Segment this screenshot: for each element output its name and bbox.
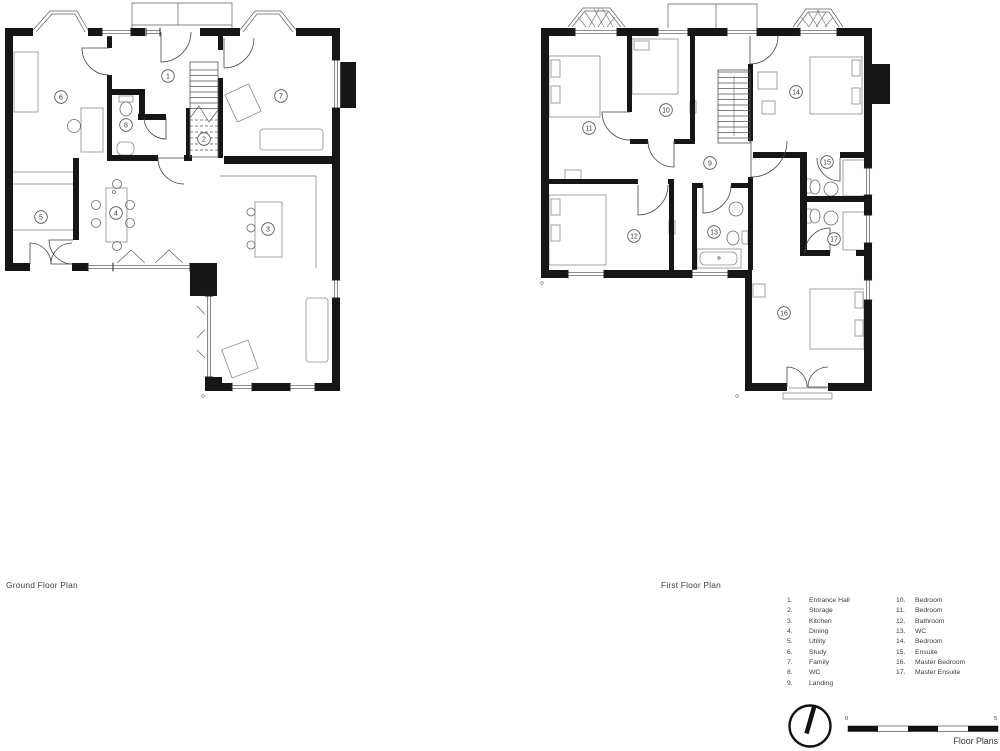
exterior-wall xyxy=(5,36,13,263)
furniture xyxy=(117,142,134,155)
room-number-label: 8 xyxy=(120,119,133,132)
interior-wall xyxy=(218,78,223,158)
room-number-text: 1 xyxy=(166,73,170,80)
exterior-wall xyxy=(757,28,800,36)
interior-wall xyxy=(138,114,166,120)
door-swing xyxy=(648,141,674,167)
room-number-label: 14 xyxy=(790,86,803,99)
furniture xyxy=(222,340,259,378)
furniture xyxy=(634,41,649,50)
exterior-wall xyxy=(864,36,872,168)
room-number-label: 1 xyxy=(162,70,175,83)
interior-wall xyxy=(186,108,190,158)
interior-wall xyxy=(840,152,864,158)
interior-wall xyxy=(218,36,223,50)
room-number-label: 6 xyxy=(55,91,68,104)
exterior-wall xyxy=(228,28,240,36)
exterior-wall xyxy=(5,28,33,36)
interior-wall xyxy=(139,89,145,118)
scale-bar-segment xyxy=(968,726,998,732)
legend-item-number: 13. xyxy=(896,627,915,637)
legend-item-label: Bedroom xyxy=(915,606,943,616)
interior-wall xyxy=(669,179,674,270)
legend-item: 11.Bedroom xyxy=(896,606,965,616)
legend-item-number: 4. xyxy=(787,627,809,637)
exterior-wall xyxy=(604,270,692,278)
fixture xyxy=(247,208,255,216)
interior-wall xyxy=(753,152,807,158)
legend-item: 17.Master Ensuite xyxy=(896,668,965,678)
legend-item-label: Bathroom xyxy=(915,617,944,627)
legend-item-label: Study xyxy=(809,648,826,658)
detail-line xyxy=(825,17,833,27)
legend-item-number: 1. xyxy=(787,596,809,606)
drawing-sheet: 12345678 91011121314151617 Ground Floor … xyxy=(0,0,1000,751)
furniture xyxy=(551,60,560,77)
legend-item: 7.Family xyxy=(787,658,850,668)
legend-item: 12.Bathroom xyxy=(896,617,965,627)
room-number-label: 16 xyxy=(778,307,791,320)
legend-item-label: Dining xyxy=(809,627,828,637)
glazing-outline xyxy=(132,3,232,28)
window xyxy=(332,60,340,108)
interior-wall xyxy=(800,202,807,250)
legend-item-number: 7. xyxy=(787,658,809,668)
door-swing xyxy=(805,228,830,253)
furniture xyxy=(14,52,38,112)
fixture xyxy=(824,211,838,225)
furniture xyxy=(855,320,863,336)
furniture xyxy=(742,231,748,244)
room-number-text: 5 xyxy=(39,214,43,221)
legend-column-2: 10.Bedroom11.Bedroom12.Bathroom13.WC14.B… xyxy=(896,596,965,679)
legend-item-number: 6. xyxy=(787,648,809,658)
legend-item-number: 3. xyxy=(787,617,809,627)
fixture xyxy=(113,180,122,189)
room-number-text: 8 xyxy=(124,122,128,129)
interior-wall xyxy=(630,139,648,144)
furniture xyxy=(843,160,866,196)
exterior-wall xyxy=(332,36,340,60)
interior-wall xyxy=(692,183,703,188)
glazing-outline xyxy=(668,4,757,28)
furniture xyxy=(852,88,860,104)
exterior-wall xyxy=(332,298,340,391)
north-needle xyxy=(807,706,815,734)
room-number-text: 3 xyxy=(266,226,270,233)
legend-item-label: Storage xyxy=(809,606,833,616)
legend-item: 14.Bedroom xyxy=(896,637,965,647)
exterior-wall xyxy=(745,278,752,383)
legend-item-number: 10. xyxy=(896,596,915,606)
ground-floor-title: Ground Floor Plan xyxy=(6,580,78,590)
detail-line xyxy=(603,9,613,27)
room-number-label: 11 xyxy=(583,122,596,135)
door-swing xyxy=(144,117,166,139)
legend-item: 8.WC xyxy=(787,668,850,678)
room-number-label: 9 xyxy=(704,157,717,170)
legend-item: 13.WC xyxy=(896,627,965,637)
legend-item-label: Utility xyxy=(809,637,826,647)
exterior-wall xyxy=(88,28,102,36)
exterior-wall xyxy=(541,36,549,270)
scale-start-label: 0 xyxy=(845,716,848,722)
legend-item-label: WC xyxy=(915,627,926,637)
fixture xyxy=(727,231,739,245)
interior-wall xyxy=(107,155,158,161)
interior-wall xyxy=(748,64,753,141)
legend-item-number: 8. xyxy=(787,668,809,678)
fixture xyxy=(92,201,101,210)
interior-wall xyxy=(800,250,830,256)
window xyxy=(864,215,872,243)
sheet-title: Floor Plans xyxy=(850,736,998,746)
window xyxy=(864,168,872,195)
window xyxy=(800,28,837,36)
room-number-text: 7 xyxy=(279,93,283,100)
survey-dot xyxy=(541,282,544,285)
legend-column-1: 1.Entrance Hall2.Storage3.Kitchen4.Dinin… xyxy=(787,596,850,689)
exterior-wall xyxy=(200,28,228,36)
window xyxy=(290,383,315,391)
room-number-label: 5 xyxy=(35,211,48,224)
fixture xyxy=(729,202,743,216)
furniture xyxy=(81,108,103,152)
interior-wall xyxy=(731,183,752,188)
interior-wall xyxy=(545,179,638,184)
door-swing xyxy=(82,48,109,75)
legend-item: 4.Dining xyxy=(787,627,850,637)
furniture xyxy=(762,101,775,114)
legend-item-number: 12. xyxy=(896,617,915,627)
door-swing xyxy=(161,32,191,62)
furniture xyxy=(700,252,737,265)
window xyxy=(727,28,757,36)
exterior-wall xyxy=(745,383,787,391)
interior-wall xyxy=(73,158,79,240)
exterior-wall xyxy=(296,28,340,36)
legend-item-label: Ensuite xyxy=(915,648,938,658)
fixture xyxy=(824,182,838,196)
fixture xyxy=(120,102,132,116)
interior-wall xyxy=(692,188,697,270)
door-swing xyxy=(49,240,73,264)
floor-plans-canvas: 12345678 91011121314151617 xyxy=(0,0,1000,751)
legend-item: 3.Kitchen xyxy=(787,617,850,627)
door-swing xyxy=(30,243,51,264)
first-floor-title: First Floor Plan xyxy=(661,580,721,590)
room-number-label: 17 xyxy=(828,233,841,246)
ground-floor-plan-drawing: 12345678 xyxy=(5,3,356,397)
legend-item-number: 17. xyxy=(896,668,915,678)
legend-item-number: 11. xyxy=(896,606,915,616)
fixture xyxy=(92,219,101,228)
window xyxy=(658,28,688,36)
legend-item-label: Kitchen xyxy=(809,617,832,627)
room-number-text: 12 xyxy=(630,233,638,240)
window xyxy=(568,270,604,278)
fixture xyxy=(810,180,820,194)
legend-item-number: 15. xyxy=(896,648,915,658)
interior-wall xyxy=(800,158,807,198)
legend-item-number: 2. xyxy=(787,606,809,616)
furniture xyxy=(306,298,328,362)
room-number-text: 6 xyxy=(59,94,63,101)
exterior-wall xyxy=(688,28,727,36)
door-swing xyxy=(602,112,630,140)
exterior-wall xyxy=(5,263,30,271)
furniture xyxy=(225,84,261,122)
legend-item-label: Master Ensuite xyxy=(915,668,960,678)
window xyxy=(205,296,213,377)
interior-wall xyxy=(107,36,112,48)
room-number-label: 3 xyxy=(262,223,275,236)
interior-wall xyxy=(690,36,695,139)
room-number-label: 7 xyxy=(275,90,288,103)
furniture xyxy=(551,199,560,215)
exterior-wall xyxy=(617,28,658,36)
window xyxy=(232,383,252,391)
scale-bar-segment xyxy=(848,726,878,732)
furniture xyxy=(260,129,323,150)
exterior-wall xyxy=(340,62,356,108)
furniture xyxy=(852,60,860,76)
legend-item: 9.Landing xyxy=(787,679,850,689)
room-number-text: 16 xyxy=(780,310,788,317)
window xyxy=(146,28,160,36)
interior-wall xyxy=(674,139,695,144)
first-floor-plan-drawing: 91011121314151617 xyxy=(541,4,890,399)
legend-item: 5.Utility xyxy=(787,637,850,647)
scale-bar xyxy=(848,726,998,732)
door-swing xyxy=(751,141,787,177)
legend-item-number: 16. xyxy=(896,658,915,668)
detail-line xyxy=(801,17,809,27)
exterior-wall xyxy=(864,195,872,215)
exterior-wall xyxy=(205,383,232,391)
exterior-wall xyxy=(190,263,217,296)
interior-wall xyxy=(627,36,632,112)
legend-item-label: Entrance Hall xyxy=(809,596,850,606)
room-number-text: 11 xyxy=(585,125,592,132)
legend-item-label: Landing xyxy=(809,679,833,689)
exterior-wall xyxy=(864,243,872,280)
legend-item: 2.Storage xyxy=(787,606,850,616)
legend-item: 15.Ensuite xyxy=(896,648,965,658)
exterior-wall xyxy=(837,28,872,36)
scale-end-label: 5 xyxy=(994,716,997,722)
furniture xyxy=(783,393,832,399)
door-swing xyxy=(787,367,807,387)
legend-item: 10.Bedroom xyxy=(896,596,965,606)
door-swing xyxy=(808,367,828,387)
legend-item-label: Bedroom xyxy=(915,637,943,647)
scale-bar-segment xyxy=(908,726,938,732)
survey-dot xyxy=(202,395,205,398)
room-number-text: 10 xyxy=(662,107,670,114)
exterior-wall xyxy=(72,263,88,271)
exterior-wall xyxy=(541,28,575,36)
interior-wall xyxy=(224,156,336,164)
room-number-text: 15 xyxy=(823,159,831,166)
room-number-label: 13 xyxy=(708,226,721,239)
window xyxy=(88,263,113,271)
door-swing xyxy=(703,185,731,213)
legend-item-number: 14. xyxy=(896,637,915,647)
exterior-wall xyxy=(332,108,340,280)
room-number-text: 4 xyxy=(114,210,118,217)
legend-item-label: Bedroom xyxy=(915,596,943,606)
furniture xyxy=(551,86,560,103)
exterior-wall xyxy=(864,300,872,391)
north-arrow xyxy=(790,706,831,747)
furniture xyxy=(11,172,74,184)
legend-item-label: Family xyxy=(809,658,829,668)
exterior-wall xyxy=(728,270,752,278)
glazing-outline xyxy=(36,14,85,32)
room-number-text: 13 xyxy=(710,229,718,236)
room-number-label: 15 xyxy=(821,156,834,169)
interior-wall xyxy=(107,75,112,155)
room-number-text: 2 xyxy=(202,136,206,143)
detail-line xyxy=(589,9,599,27)
furniture xyxy=(843,212,866,250)
fixture xyxy=(68,120,81,133)
glazing-outline xyxy=(115,250,147,265)
window xyxy=(332,280,340,298)
room-number-label: 12 xyxy=(628,230,641,243)
door-swing xyxy=(638,185,668,215)
interior-wall xyxy=(748,177,753,270)
legend-item-number: 9. xyxy=(787,679,809,689)
detail-line xyxy=(816,12,826,27)
furniture xyxy=(119,96,133,102)
furniture xyxy=(551,225,560,241)
interior-wall xyxy=(800,196,864,202)
door-swing xyxy=(224,38,254,68)
window xyxy=(575,28,617,36)
furniture xyxy=(753,284,765,297)
glazing-outline xyxy=(153,250,185,265)
legend-item: 16.Master Bedroom xyxy=(896,658,965,668)
room-number-text: 14 xyxy=(792,89,800,96)
room-number-label: 4 xyxy=(110,207,123,220)
fixture xyxy=(247,241,255,249)
survey-dot xyxy=(736,395,739,398)
exterior-wall xyxy=(252,383,290,391)
legend-item-label: Master Bedroom xyxy=(915,658,965,668)
detail-line xyxy=(578,17,586,27)
legend-item: 1.Entrance Hall xyxy=(787,596,850,606)
door-swing xyxy=(750,36,778,64)
furniture xyxy=(758,72,777,89)
door-swing xyxy=(158,158,184,184)
room-number-label: 10 xyxy=(660,104,673,117)
window xyxy=(102,28,131,36)
exterior-wall xyxy=(131,28,145,36)
window xyxy=(864,280,872,300)
room-number-text: 17 xyxy=(830,236,838,243)
fixture xyxy=(113,242,122,251)
fixture xyxy=(247,224,255,232)
furniture xyxy=(855,292,863,308)
room-number-text: 9 xyxy=(708,160,712,167)
exterior-wall xyxy=(872,64,890,104)
legend-item: 6.Study xyxy=(787,648,850,658)
detail-line xyxy=(594,9,604,27)
legend-item-label: WC xyxy=(809,668,820,678)
legend-item-number: 5. xyxy=(787,637,809,647)
fixture xyxy=(810,209,820,223)
room-number-label: 2 xyxy=(198,133,211,146)
window xyxy=(692,270,728,278)
exterior-wall xyxy=(541,270,568,278)
window xyxy=(113,263,190,271)
